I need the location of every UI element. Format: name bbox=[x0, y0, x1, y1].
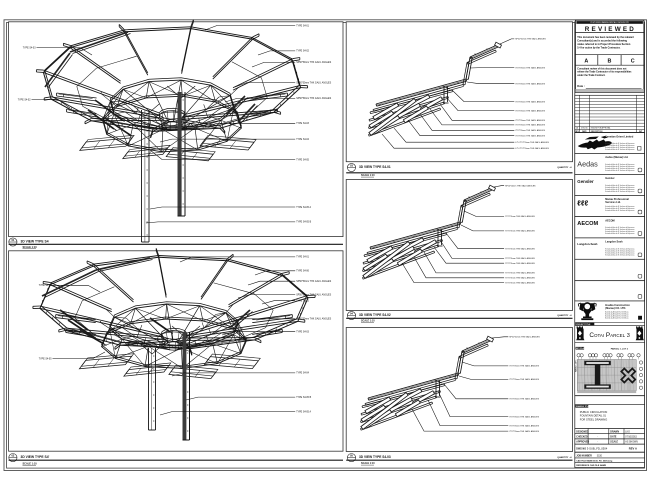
svg-text:TYPE S4-01: TYPE S4-01 bbox=[296, 25, 309, 27]
svg-text:C: C bbox=[631, 59, 635, 65]
svg-text:3D VIEW TYPE S4: 3D VIEW TYPE S4 bbox=[21, 239, 49, 243]
svg-text:relieve the Trade Contractor o: relieve the Trade Contractor of its resp… bbox=[577, 71, 632, 74]
svg-text:75*75*6mm THK GALV. ANGLES: 75*75*6mm THK GALV. ANGLES bbox=[505, 248, 535, 251]
svg-text:SCALE 1:10: SCALE 1:10 bbox=[361, 462, 375, 465]
svg-text:TYPE S4-05 A: TYPE S4-05 A bbox=[296, 206, 311, 209]
svg-text:SCALE: SCALE bbox=[610, 441, 618, 444]
svg-text:QUANTITY : 4: QUANTITY : 4 bbox=[557, 314, 572, 317]
svg-text:TYPE S4-02: TYPE S4-02 bbox=[296, 51, 309, 53]
svg-text:AS SHOWN: AS SHOWN bbox=[625, 441, 638, 444]
svg-text:ISSUED FOR APPROVAL: ISSUED FOR APPROVAL bbox=[591, 126, 611, 129]
svg-text:AECOM: AECOM bbox=[577, 221, 598, 227]
svg-text:75*75*6mm THK GALV. ANGLES: 75*75*6mm THK GALV. ANGLES bbox=[505, 262, 535, 265]
svg-text:TYPE S4-05 B: TYPE S4-05 B bbox=[296, 222, 311, 224]
svg-text:COTAI PARCEL 3: COTAI PARCEL 3 bbox=[589, 332, 630, 339]
svg-text:(Macau) CO. LTD.: (Macau) CO. LTD. bbox=[605, 307, 626, 310]
svg-text:L75 75*75*6mm THK GALV. ANGLES: L75 75*75*6mm THK GALV. ANGLES bbox=[515, 147, 549, 150]
svg-text:REFERENCE CAD FILE NAME: REFERENCE CAD FILE NAME bbox=[576, 464, 606, 467]
svg-text:3D VIEW TYPE S4-03: 3D VIEW TYPE S4-03 bbox=[359, 455, 391, 459]
svg-text:TYPE S4-05: TYPE S4-05 bbox=[296, 159, 309, 161]
svg-text:TYPE S4-01: TYPE S4-01 bbox=[296, 257, 309, 259]
svg-text:75*75*6mm THK GALV. ANGLES: 75*75*6mm THK GALV. ANGLES bbox=[505, 257, 535, 260]
svg-text:75*75*6mm THK GALV. ANGLES: 75*75*6mm THK GALV. ANGLES bbox=[515, 135, 545, 138]
svg-text:SP50*50mm THK GALV. ANGLES: SP50*50mm THK GALV. ANGLES bbox=[515, 38, 546, 41]
svg-text:Langdon·Seah: Langdon·Seah bbox=[577, 242, 597, 246]
svg-text:DATE: DATE bbox=[610, 436, 617, 439]
svg-text:status referred to in Projec: status referred to in Project Procedure … bbox=[577, 43, 631, 46]
svg-text:A: A bbox=[584, 59, 588, 65]
svg-text:TYPE S4-04: TYPE S4-04 bbox=[296, 139, 309, 141]
svg-text:3D VIEW TYPE S4': 3D VIEW TYPE S4' bbox=[21, 455, 50, 459]
svg-text:B: B bbox=[607, 59, 611, 65]
svg-text:75*75*6mm THK GALV. ANGLES: 75*75*6mm THK GALV. ANGLES bbox=[515, 129, 545, 132]
svg-text:AECOM: AECOM bbox=[605, 219, 614, 222]
svg-text:75*75*6mm THK GALV. ANGLES: 75*75*6mm THK GALV. ANGLES bbox=[509, 424, 539, 427]
svg-text:TYPE S4-03: TYPE S4-03 bbox=[296, 332, 309, 334]
svg-text:DWG NO: DWG NO bbox=[576, 449, 586, 451]
svg-text:BY MY KIND DRAWING SENT ALL DW: BY MY KIND DRAWING SENT ALL DWGS IN STR bbox=[590, 21, 629, 24]
svg-text:Consultant review of this docu: Consultant review of this document does … bbox=[577, 68, 626, 71]
svg-text:under the Trade Contract.: under the Trade Contract. bbox=[577, 74, 605, 77]
svg-text:75*75*6mm THK GALV. ANGLES: 75*75*6mm THK GALV. ANGLES bbox=[505, 272, 535, 275]
svg-text:SCALE 1:10: SCALE 1:10 bbox=[23, 462, 38, 465]
svg-text:TYPE S4-04: TYPE S4-04 bbox=[296, 373, 309, 375]
svg-text:75*75*6mm THK GALV. ANGLES: 75*75*6mm THK GALV. ANGLES bbox=[505, 230, 535, 233]
svg-text:APPROVED: APPROVED bbox=[576, 441, 589, 444]
svg-text:3D VIEW TYPE S4-01: 3D VIEW TYPE S4-01 bbox=[359, 165, 391, 169]
svg-text:75*75*6mm THK GALV. ANGLES: 75*75*6mm THK GALV. ANGLES bbox=[515, 100, 545, 103]
svg-text:TYPE S4-05 B: TYPE S4-05 B bbox=[296, 397, 311, 399]
svg-text:3-SUB_FD_0504: 3-SUB_FD_0504 bbox=[587, 447, 608, 451]
svg-text:REV A: REV A bbox=[629, 447, 637, 451]
svg-text:TYPE S4-02: TYPE S4-02 bbox=[39, 285, 52, 287]
svg-text:JOB NUMBER: JOB NUMBER bbox=[576, 456, 592, 458]
svg-text:Aedas (Macau) Ltd.: Aedas (Macau) Ltd. bbox=[605, 156, 628, 159]
svg-text:Date :: Date : bbox=[577, 84, 585, 88]
svg-text:TYPE S4-03: TYPE S4-03 bbox=[296, 123, 309, 125]
svg-text:DESIGNED: DESIGNED bbox=[576, 431, 588, 433]
svg-text:QUANTITY : 4: QUANTITY : 4 bbox=[557, 166, 572, 169]
svg-text:REVIEWED: REVIEWED bbox=[585, 26, 636, 33]
svg-text:Gensler: Gensler bbox=[605, 177, 614, 180]
svg-text:Aedas: Aedas bbox=[577, 160, 598, 169]
svg-text:75*75*6mm THK GALV. ANGLES: 75*75*6mm THK GALV. ANGLES bbox=[515, 109, 545, 112]
svg-text:75*75*6mm THK GALV. ANGLES: 75*75*6mm THK GALV. ANGLES bbox=[515, 124, 545, 127]
svg-text:3D VIEW TYPE S4-02: 3D VIEW TYPE S4-02 bbox=[359, 313, 391, 317]
svg-text:75*75*6mm THK GALV. ANGLES: 75*75*6mm THK GALV. ANGLES bbox=[509, 365, 539, 368]
svg-text:SP50*50mm THK GALV. ANGLES: SP50*50mm THK GALV. ANGLES bbox=[296, 61, 331, 64]
svg-text:75*75*6mm THK GALV. ANGLES: 75*75*6mm THK GALV. ANGLES bbox=[515, 83, 545, 86]
svg-text:75*75*6mm THK GALV. ANGLES: 75*75*6mm THK GALV. ANGLES bbox=[505, 277, 535, 280]
svg-text:This document has been reviewe: This document has been reviewed by the r… bbox=[577, 36, 634, 39]
svg-text:SCALE 1:10: SCALE 1:10 bbox=[361, 174, 375, 177]
svg-text:SP50*50mm THK GALV. ANGLES: SP50*50mm THK GALV. ANGLES bbox=[296, 318, 331, 321]
svg-text:75*75*6mm THK GALV. ANGLES: 75*75*6mm THK GALV. ANGLES bbox=[505, 281, 535, 284]
svg-text:KEY PLAN: KEY PLAN bbox=[576, 347, 586, 350]
svg-text:QUANTITY : 4: QUANTITY : 4 bbox=[557, 456, 572, 459]
svg-text:07/10/2015: 07/10/2015 bbox=[625, 437, 637, 439]
svg-text:75*75*6mm THK GALV. ANGLES: 75*75*6mm THK GALV. ANGLES bbox=[505, 215, 535, 218]
svg-text:Langdon Seah: Langdon Seah bbox=[605, 241, 623, 244]
svg-text:SP50*50mm THK GALV. ANGLES: SP50*50mm THK GALV. ANGLES bbox=[296, 293, 331, 296]
svg-text:SP50*50mm THK GALV. ANGLES: SP50*50mm THK GALV. ANGLES bbox=[505, 185, 536, 188]
svg-text:SP50*50mm THK GALV. ANGLES: SP50*50mm THK GALV. ANGLES bbox=[296, 280, 331, 283]
svg-text:FOUNTAIN DETAIL 01: FOUNTAIN DETAIL 01 bbox=[580, 414, 607, 418]
svg-text:75*75*6mm THK GALV. ANGLES: 75*75*6mm THK GALV. ANGLES bbox=[515, 66, 545, 69]
svg-text:TYPE S4-03: TYPE S4-03 bbox=[23, 47, 36, 49]
svg-text:DRAWING TITLE: DRAWING TITLE bbox=[576, 405, 590, 408]
svg-text:75*75*6mm THK GALV. ANGLES: 75*75*6mm THK GALV. ANGLES bbox=[509, 378, 539, 381]
svg-text:PARCEL 1, LOT 2: PARCEL 1, LOT 2 bbox=[611, 347, 629, 350]
svg-text:LKO: LKO bbox=[625, 431, 630, 433]
svg-text:SCALE 1:10: SCALE 1:10 bbox=[23, 246, 38, 249]
svg-text:FOR STEEL DRAWING: FOR STEEL DRAWING bbox=[580, 417, 607, 421]
svg-text:DRAWN: DRAWN bbox=[610, 430, 619, 433]
svg-text:SCALE 1:10: SCALE 1:10 bbox=[361, 319, 375, 322]
svg-text:Gensler: Gensler bbox=[577, 179, 594, 184]
svg-text:L75 75*75*6mm THK GALV. ANGLES: L75 75*75*6mm THK GALV. ANGLES bbox=[515, 141, 549, 144]
svg-text:TYPE S4-05 A: TYPE S4-05 A bbox=[296, 410, 311, 413]
svg-text:SP50*50mm THK GALV. ANGLES: SP50*50mm THK GALV. ANGLES bbox=[296, 97, 331, 100]
svg-text:75*75*6mm THK GALV. ANGLES: 75*75*6mm THK GALV. ANGLES bbox=[509, 430, 539, 433]
svg-text:5.4 for action by the Trade Co: 5.4 for action by the Trade Contractor. bbox=[577, 47, 620, 50]
svg-text:TYPE S4-02: TYPE S4-02 bbox=[296, 301, 309, 303]
svg-text:CAD FILE NAME 5150_FD_0509.dwg: CAD FILE NAME 5150_FD_0509.dwg bbox=[576, 459, 613, 462]
svg-text:3150: 3150 bbox=[597, 456, 603, 458]
svg-text:75*75*6mm THK GALV. ANGLES: 75*75*6mm THK GALV. ANGLES bbox=[509, 415, 539, 418]
svg-text:Venetian Orient Limited: Venetian Orient Limited bbox=[605, 135, 633, 138]
svg-text:Consultant(s) and is accorded: Consultant(s) and is accorded the follow… bbox=[577, 40, 627, 43]
svg-text:75*75*6mm THK GALV. ANGLES: 75*75*6mm THK GALV. ANGLES bbox=[509, 398, 539, 401]
svg-text:CHECKED: CHECKED bbox=[576, 437, 588, 439]
svg-text:PUBLIC CIRCULATION: PUBLIC CIRCULATION bbox=[580, 410, 608, 414]
svg-text:ℓℓℓ: ℓℓℓ bbox=[577, 199, 588, 208]
svg-text:SP50*50mm THK GALV. ANGLES: SP50*50mm THK GALV. ANGLES bbox=[509, 336, 540, 339]
svg-text:Services Ltd.: Services Ltd. bbox=[605, 201, 621, 204]
svg-text:TYPE S4-05: TYPE S4-05 bbox=[39, 358, 52, 360]
svg-text:75*75*6mm THK GALV. ANGLES: 75*75*6mm THK GALV. ANGLES bbox=[515, 119, 545, 122]
svg-text:TYPE S4-06: TYPE S4-06 bbox=[296, 271, 309, 273]
svg-text:SP50*50mm THK GALV. ANGLES: SP50*50mm THK GALV. ANGLES bbox=[296, 81, 331, 84]
svg-text:TYPE S4-02: TYPE S4-02 bbox=[18, 99, 31, 101]
